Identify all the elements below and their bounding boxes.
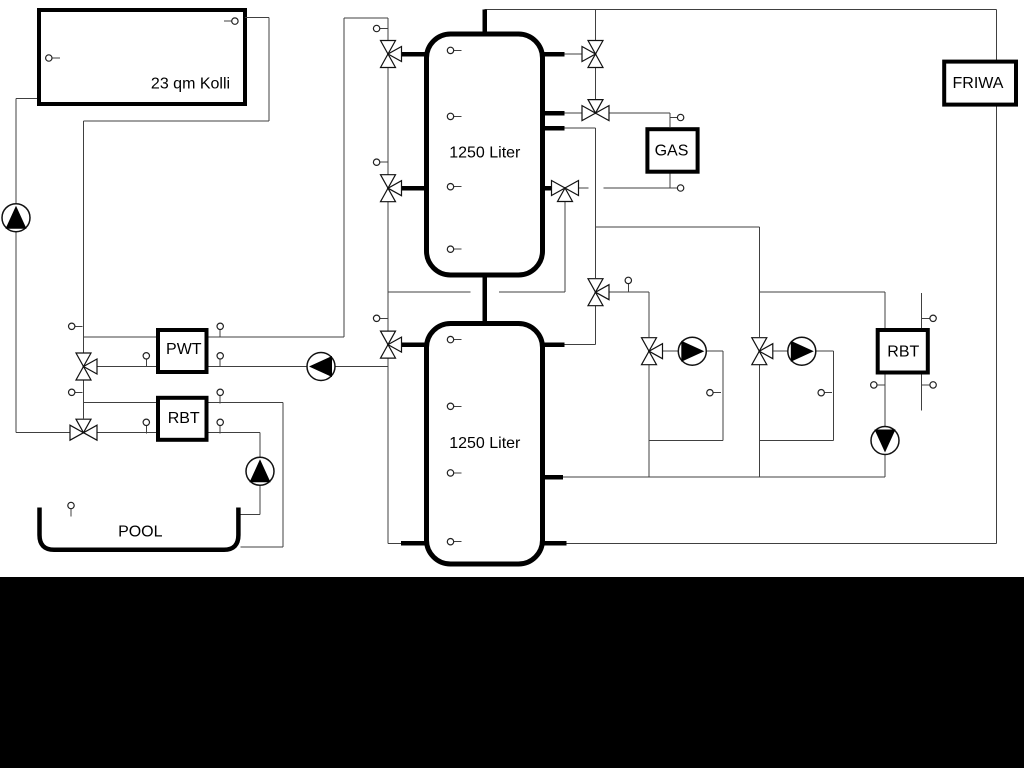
svg-text:23 qm Kolli: 23 qm Kolli: [151, 76, 230, 93]
svg-text:RBT: RBT: [887, 344, 919, 361]
svg-text:GAS: GAS: [655, 142, 689, 159]
svg-text:FRIWA: FRIWA: [953, 75, 1004, 92]
svg-text:PWT: PWT: [166, 341, 202, 358]
svg-text:POOL: POOL: [118, 524, 163, 541]
svg-text:1250 Liter: 1250 Liter: [449, 145, 521, 162]
svg-text:RBT: RBT: [168, 410, 200, 427]
svg-text:1250 Liter: 1250 Liter: [449, 435, 521, 452]
